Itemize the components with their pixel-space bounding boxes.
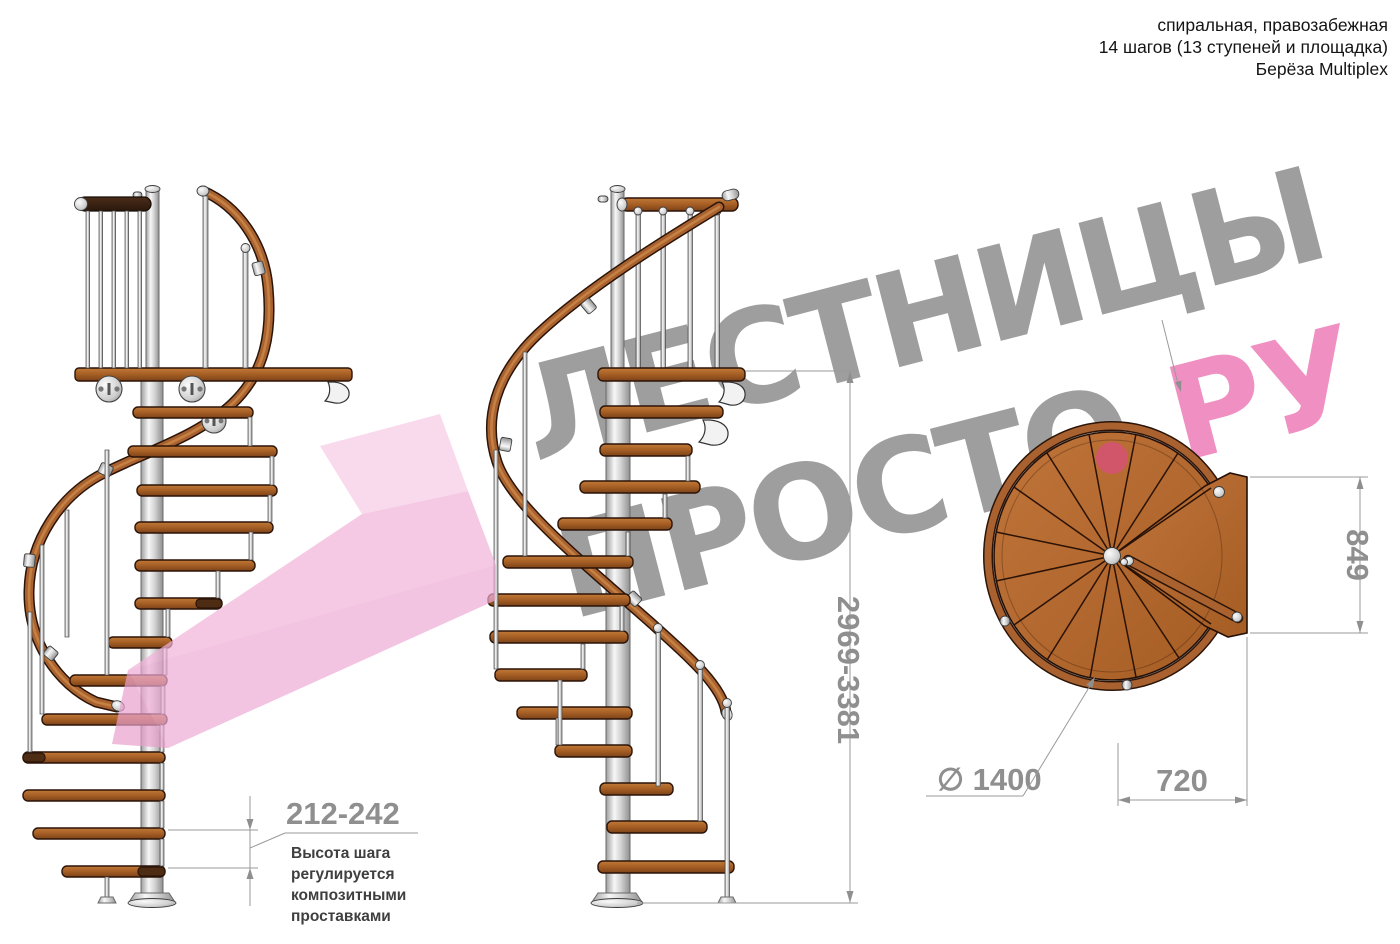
elevation-view-side — [488, 186, 745, 908]
dimension-step-height-value: 212-242 — [286, 796, 400, 831]
center-pole-upper — [146, 189, 159, 379]
flange-disc — [96, 376, 122, 402]
landing-handrail-dark — [78, 197, 151, 211]
drawing-sheet: ЛЕСТНИЦЫ ПРОСТО.РУ — [0, 0, 1400, 944]
staircase-drawing: 212-242 Высота шага регулируется компози… — [0, 0, 1400, 944]
top-landing-left — [75, 196, 353, 433]
watermark-arrow — [112, 414, 496, 748]
note-line: регулируется — [291, 866, 394, 883]
title-line-type: спиральная, правозабежная — [1099, 14, 1388, 36]
landing-bracket — [699, 420, 728, 445]
title-line-steps: 14 шагов (13 ступеней и площадка) — [1099, 36, 1388, 58]
leader-handrail — [1162, 320, 1181, 392]
title-line-material: Берёза Multiplex — [1099, 58, 1388, 80]
title-block: спиральная, правозабежная 14 шагов (13 с… — [1099, 14, 1388, 80]
dimension-landing-width-value: 720 — [1156, 763, 1208, 798]
note-line: проставками — [291, 908, 391, 925]
flange-disc — [179, 376, 205, 402]
dimension-note: Высота шага регулируется композитными пр… — [291, 845, 406, 925]
plan-rail-end-cap — [1214, 487, 1225, 498]
top-landing-side — [617, 188, 740, 368]
dimension-landing-depth-value: 849 — [1340, 529, 1375, 581]
center-pole-upper — [611, 189, 624, 379]
dimension-step-height: 212-242 Высота шага регулируется компози… — [168, 796, 418, 925]
dimension-diameter: ∅ 1400 — [926, 677, 1095, 797]
plan-center-pole — [1104, 548, 1121, 565]
watermark-dot-overlay — [1096, 442, 1128, 474]
note-line: композитными — [291, 887, 406, 904]
landing-bracket — [719, 382, 745, 405]
dimension-landing-depth: 849 — [1250, 477, 1375, 633]
note-line: Высота шага — [291, 845, 391, 862]
dimension-total-height-value: 2969-3381 — [831, 596, 866, 744]
